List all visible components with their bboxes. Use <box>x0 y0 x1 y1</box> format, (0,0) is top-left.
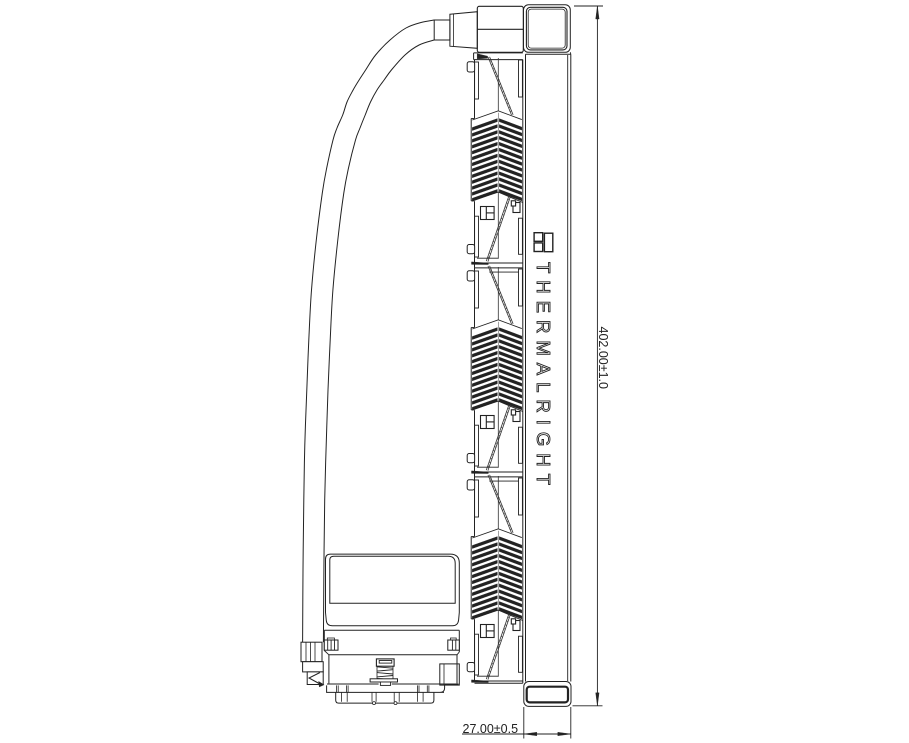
svg-text:THERMALRIGHT: THERMALRIGHT <box>533 262 554 492</box>
svg-text:27.00±0.5: 27.00±0.5 <box>463 722 519 736</box>
svg-text:402.00±1.0: 402.00±1.0 <box>596 327 610 390</box>
